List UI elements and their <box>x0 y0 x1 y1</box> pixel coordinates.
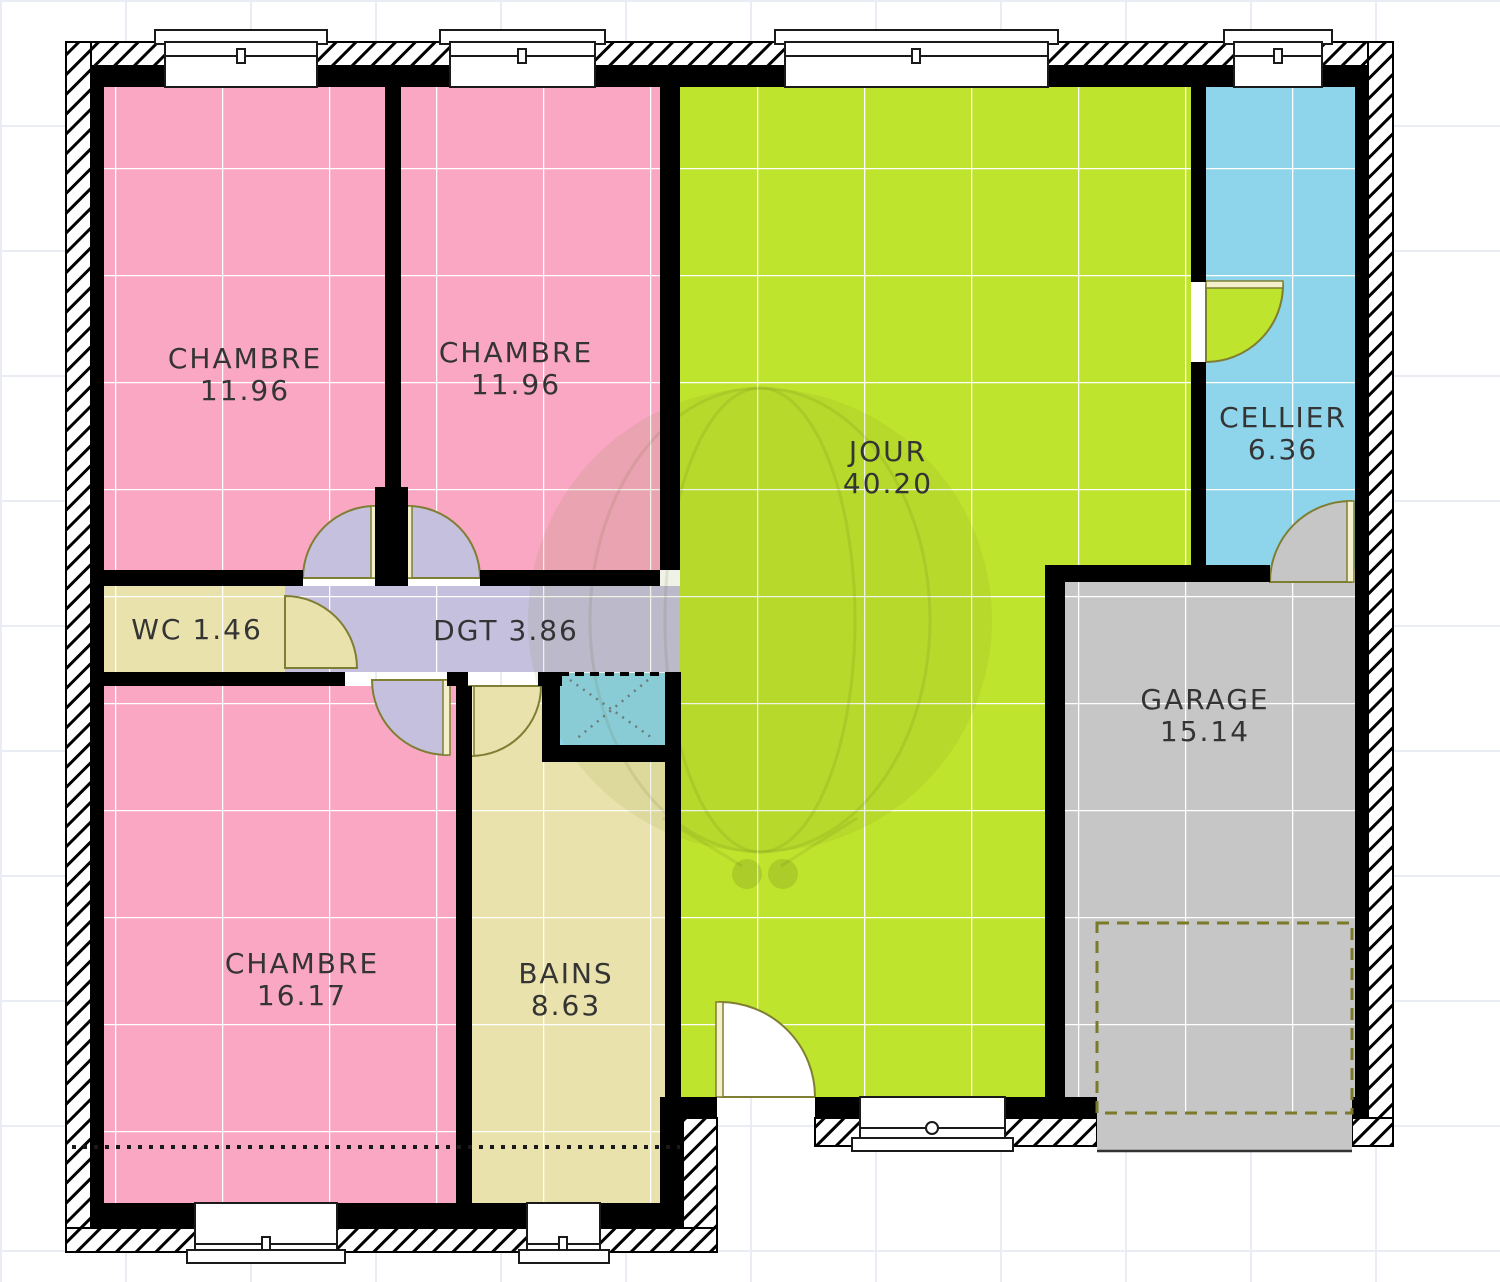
window-jour-bottom <box>852 1097 1013 1151</box>
window-jour-top <box>775 30 1058 87</box>
door-leaf-cellier <box>1206 281 1283 288</box>
ext-wall-right-black <box>1355 66 1368 1118</box>
wall-bains-jour <box>665 672 681 1097</box>
door-leaf-garage-cellier <box>1347 501 1354 582</box>
wall-stub-chambre-doors <box>375 487 408 586</box>
room-area-jour: 40.20 <box>843 467 933 500</box>
room-label-chambre-2: CHAMBRE <box>439 336 593 369</box>
wall-chambre3-bains <box>456 686 472 1203</box>
room-area-chambre-1: 11.96 <box>200 374 290 407</box>
wall-wc-chambre3 <box>104 672 345 686</box>
window-chambre-3 <box>187 1203 345 1263</box>
window-cellier <box>1224 30 1332 87</box>
room-label-garage: GARAGE <box>1140 683 1269 716</box>
wall-chambre2-jour <box>660 87 680 570</box>
floor-plan-svg: CHAMBRE 11.96 CHAMBRE 11.96 JOUR 40.20 C… <box>0 0 1500 1282</box>
ext-wall-bottom-hatch-4 <box>1352 1118 1393 1146</box>
chambre-1-tile-grid <box>104 87 385 570</box>
wall-chambre1-dgt <box>104 570 303 586</box>
chambre-3-tile-grid <box>104 686 456 1203</box>
window-bains <box>519 1203 609 1263</box>
ext-wall-left-black <box>91 66 104 1228</box>
wall-between-chambres <box>385 87 401 487</box>
ext-wall-bottom-hatch-3 <box>1005 1118 1097 1146</box>
ext-wall-right-hatch <box>1368 42 1393 1146</box>
wall-jour-cellier-lower <box>1191 362 1206 570</box>
room-area-bains: 8.63 <box>531 989 601 1022</box>
ext-wall-block-bottom-hatch <box>66 1228 717 1252</box>
room-area-garage: 15.14 <box>1160 715 1250 748</box>
window-chambre-2 <box>440 30 605 87</box>
ext-wall-bottom-black-2 <box>815 1097 860 1118</box>
room-label-wc: WC1.46 <box>131 613 263 646</box>
wall-jour-cellier-upper <box>1191 87 1206 282</box>
room-label-bains: BAINS <box>518 957 613 990</box>
wall-chambre2-dgt <box>480 570 660 586</box>
room-area-chambre-3: 16.17 <box>257 979 347 1012</box>
door-leaf-chambre-3 <box>443 680 450 755</box>
wall-shower-south <box>542 745 681 762</box>
room-label-cellier: CELLIER <box>1219 401 1347 434</box>
floor-plan: CHAMBRE 11.96 CHAMBRE 11.96 JOUR 40.20 C… <box>0 0 1500 1282</box>
ext-wall-left-hatch <box>66 42 91 1252</box>
wall-garage-top <box>1045 565 1270 582</box>
window-chambre-1 <box>155 30 327 87</box>
door-leaf-entrance <box>716 1002 723 1097</box>
wall-stub-bains-door <box>447 672 468 686</box>
ext-wall-notch-black <box>660 1097 683 1228</box>
room-label-jour: JOUR <box>847 435 927 468</box>
room-area-cellier: 6.36 <box>1248 433 1318 466</box>
garage-door-apron <box>1097 1113 1352 1152</box>
room-label-chambre-1: CHAMBRE <box>168 342 322 375</box>
wall-garage-west <box>1045 565 1065 1115</box>
room-label-chambre-3: CHAMBRE <box>225 947 379 980</box>
room-area-chambre-2: 11.96 <box>471 368 561 401</box>
garage-tile-grid <box>1065 582 1355 1113</box>
ext-wall-bottom-black-3 <box>1005 1097 1097 1118</box>
